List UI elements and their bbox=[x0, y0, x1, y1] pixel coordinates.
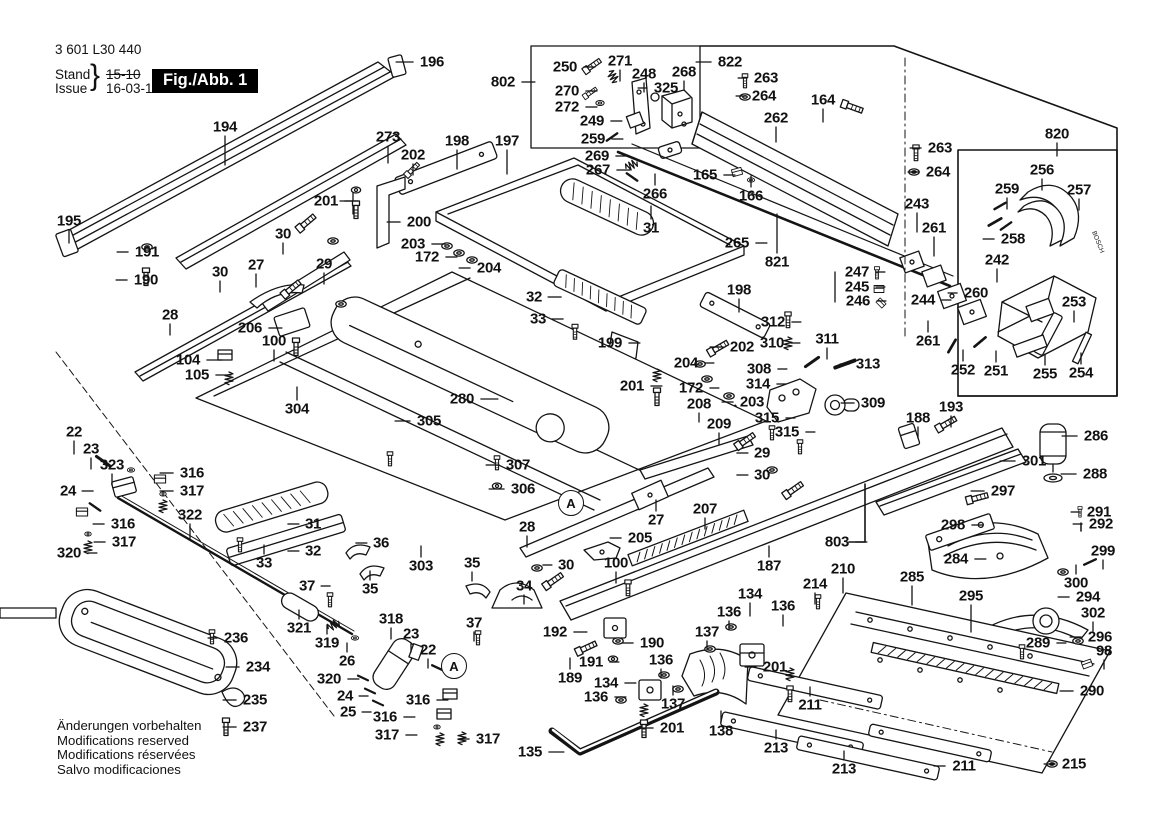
part-label: 202 bbox=[401, 148, 425, 163]
part-label: 271 bbox=[608, 54, 632, 69]
part-label: 262 bbox=[764, 111, 788, 126]
part-label: 194 bbox=[213, 120, 237, 135]
part-label: 36 bbox=[373, 536, 389, 551]
part-label: 288 bbox=[1083, 467, 1107, 482]
part-label: 211 bbox=[798, 698, 821, 713]
part-label: 208 bbox=[687, 397, 711, 412]
part-label: 320 bbox=[317, 672, 341, 687]
part-label: 255 bbox=[1033, 367, 1057, 382]
part-label: 29 bbox=[316, 257, 332, 272]
part-label: 209 bbox=[707, 417, 731, 432]
part-label: 259 bbox=[581, 132, 605, 147]
part-label: 266 bbox=[643, 187, 667, 202]
part-label: 802 bbox=[491, 75, 515, 90]
part-label: 197 bbox=[495, 134, 519, 149]
footer-line-es: Salvo modificaciones bbox=[57, 763, 201, 778]
part-label: 35 bbox=[362, 582, 378, 597]
part-label: 304 bbox=[285, 402, 309, 417]
part-label: 303 bbox=[409, 559, 433, 574]
part-label: 33 bbox=[256, 556, 272, 571]
part-label: 198 bbox=[727, 283, 751, 298]
part-label: 321 bbox=[287, 621, 311, 636]
part-label: 134 bbox=[738, 587, 762, 602]
part-label: 251 bbox=[984, 364, 1008, 379]
part-label: 22 bbox=[66, 425, 82, 440]
part-label: 316 bbox=[180, 466, 204, 481]
part-label: 37 bbox=[299, 579, 315, 594]
part-label: 204 bbox=[674, 356, 698, 371]
footer-line-en: Modifications reserved bbox=[57, 734, 201, 749]
part-label: 317 bbox=[375, 728, 399, 743]
circled-ref-a: A bbox=[558, 490, 584, 516]
part-label: 286 bbox=[1084, 429, 1108, 444]
part-label: 259 bbox=[995, 182, 1019, 197]
part-label: 33 bbox=[530, 312, 546, 327]
part-label: 28 bbox=[162, 308, 178, 323]
part-label: 234 bbox=[246, 660, 270, 675]
part-label: 31 bbox=[643, 221, 659, 236]
part-label: 192 bbox=[543, 625, 567, 640]
part-label: 254 bbox=[1069, 366, 1093, 381]
part-label: 308 bbox=[747, 362, 771, 377]
part-label: 32 bbox=[526, 290, 542, 305]
part-label: 202 bbox=[730, 340, 754, 355]
part-label: 189 bbox=[558, 671, 582, 686]
part-label: 237 bbox=[243, 720, 267, 735]
part-label: 25 bbox=[340, 705, 356, 720]
part-label: 310 bbox=[760, 336, 784, 351]
part-label: 315 bbox=[775, 425, 799, 440]
part-label: 313 bbox=[856, 357, 880, 372]
part-label: 302 bbox=[1081, 606, 1105, 621]
part-label: 268 bbox=[672, 65, 696, 80]
part-label: 37 bbox=[466, 616, 482, 631]
part-label: 280 bbox=[450, 392, 474, 407]
footer-notice: Änderungen vorbehalten Modifications res… bbox=[57, 719, 201, 777]
part-label: 306 bbox=[511, 482, 535, 497]
part-label: 24 bbox=[337, 689, 353, 704]
part-label: 203 bbox=[740, 395, 764, 410]
part-label: 100 bbox=[604, 556, 628, 571]
part-label: 249 bbox=[580, 114, 604, 129]
part-label: 191 bbox=[579, 655, 603, 670]
part-label: 190 bbox=[640, 636, 664, 651]
part-label: 98 bbox=[1096, 644, 1112, 659]
part-label: 205 bbox=[628, 531, 652, 546]
part-label: 316 bbox=[111, 517, 135, 532]
part-label: 201 bbox=[660, 721, 684, 736]
part-label: 323 bbox=[100, 458, 124, 473]
part-label: 325 bbox=[654, 81, 678, 96]
part-label: 821 bbox=[765, 255, 789, 270]
part-label: 100 bbox=[262, 334, 286, 349]
part-label: 164 bbox=[811, 93, 835, 108]
part-label: 200 bbox=[407, 215, 431, 230]
part-label: 298 bbox=[941, 518, 965, 533]
part-label: 322 bbox=[178, 508, 202, 523]
circled-ref-a: A bbox=[441, 653, 467, 679]
part-label: 273 bbox=[376, 130, 400, 145]
part-label: 135 bbox=[518, 745, 542, 760]
parts-diagram-page: BOSCH bbox=[0, 0, 1166, 824]
part-label: 272 bbox=[555, 100, 579, 115]
part-label: 136 bbox=[771, 599, 795, 614]
part-label: 252 bbox=[951, 363, 975, 378]
part-label: 263 bbox=[928, 141, 952, 156]
part-label: 257 bbox=[1067, 183, 1091, 198]
part-label: 263 bbox=[754, 71, 778, 86]
part-label: 236 bbox=[224, 631, 248, 646]
part-label: 213 bbox=[764, 741, 788, 756]
part-label: 316 bbox=[406, 693, 430, 708]
part-label: 269 bbox=[585, 149, 609, 164]
part-label: 267 bbox=[586, 163, 610, 178]
part-label: 289 bbox=[1026, 636, 1050, 651]
part-label: 247 bbox=[845, 265, 869, 280]
part-label: 137 bbox=[695, 625, 719, 640]
stand-label: Stand bbox=[55, 67, 90, 82]
part-label: 22 bbox=[420, 643, 436, 658]
part-label: 265 bbox=[725, 236, 749, 251]
part-label: 193 bbox=[939, 400, 963, 415]
part-label: 242 bbox=[985, 253, 1009, 268]
part-label: 309 bbox=[861, 396, 885, 411]
part-label: 285 bbox=[900, 570, 924, 585]
part-label: 244 bbox=[911, 293, 935, 308]
part-label: 24 bbox=[60, 484, 76, 499]
part-label: 30 bbox=[275, 227, 291, 242]
part-label: 165 bbox=[693, 168, 717, 183]
part-label: 243 bbox=[905, 197, 929, 212]
part-label: 253 bbox=[1062, 295, 1086, 310]
part-label: 35 bbox=[464, 556, 480, 571]
part-label: 172 bbox=[415, 250, 439, 265]
part-label: 166 bbox=[739, 189, 763, 204]
part-label: 23 bbox=[403, 627, 419, 642]
footer-line-fr: Modifications réservées bbox=[57, 748, 201, 763]
part-label: 201 bbox=[763, 660, 787, 675]
part-label: 211 bbox=[952, 759, 975, 774]
part-label: 290 bbox=[1080, 684, 1104, 699]
issue-label: Issue bbox=[55, 81, 87, 96]
part-label: 199 bbox=[598, 336, 622, 351]
part-label: 260 bbox=[964, 286, 988, 301]
part-label: 207 bbox=[693, 502, 717, 517]
part-label: 248 bbox=[632, 67, 656, 82]
part-label: 137 bbox=[661, 697, 685, 712]
part-label: 23 bbox=[83, 442, 99, 457]
part-label: 294 bbox=[1076, 590, 1100, 605]
part-label: 195 bbox=[57, 214, 81, 229]
part-label: 270 bbox=[555, 84, 579, 99]
part-label: 235 bbox=[243, 693, 267, 708]
part-label: 301 bbox=[1022, 454, 1046, 469]
part-label: 292 bbox=[1089, 517, 1113, 532]
part-label: 820 bbox=[1045, 127, 1069, 142]
part-label: 30 bbox=[212, 265, 228, 280]
part-label: 31 bbox=[305, 517, 321, 532]
part-label: 319 bbox=[315, 636, 339, 651]
part-label: 105 bbox=[185, 368, 209, 383]
part-label: 201 bbox=[314, 194, 338, 209]
part-label: 258 bbox=[1001, 232, 1025, 247]
part-label: 30 bbox=[558, 558, 574, 573]
part-label: 803 bbox=[825, 535, 849, 550]
part-label: 214 bbox=[803, 577, 827, 592]
part-label: 27 bbox=[248, 258, 264, 273]
part-label: 136 bbox=[717, 605, 741, 620]
old-date: 15-10 bbox=[106, 67, 141, 82]
document-number: 3 601 L30 440 bbox=[55, 42, 141, 57]
part-label: 295 bbox=[959, 589, 983, 604]
part-label: 261 bbox=[916, 334, 940, 349]
footer-line-de: Änderungen vorbehalten bbox=[57, 719, 201, 734]
part-label: 138 bbox=[709, 724, 733, 739]
part-label: 312 bbox=[761, 315, 785, 330]
part-label: 136 bbox=[649, 653, 673, 668]
part-label: 30 bbox=[754, 468, 770, 483]
part-label: 213 bbox=[832, 762, 856, 777]
part-label: 318 bbox=[379, 612, 403, 627]
part-label: 201 bbox=[620, 379, 644, 394]
part-label: 188 bbox=[906, 411, 930, 426]
part-label: 210 bbox=[831, 562, 855, 577]
part-label: 204 bbox=[477, 261, 501, 276]
part-label: 250 bbox=[553, 60, 577, 75]
part-label: 317 bbox=[180, 484, 204, 499]
part-label: 317 bbox=[476, 732, 500, 747]
part-label: 305 bbox=[417, 414, 441, 429]
part-label: 104 bbox=[176, 353, 200, 368]
part-label: 26 bbox=[339, 654, 355, 669]
part-label: 34 bbox=[516, 579, 532, 594]
part-label: 261 bbox=[922, 221, 946, 236]
part-label: 198 bbox=[445, 134, 469, 149]
brace-glyph: } bbox=[90, 61, 100, 91]
part-label: 297 bbox=[991, 484, 1015, 499]
part-label: 190 bbox=[134, 273, 158, 288]
part-label: 317 bbox=[112, 535, 136, 550]
part-label: 206 bbox=[238, 321, 262, 336]
part-label: 311 bbox=[815, 332, 838, 347]
part-label: 284 bbox=[944, 552, 968, 567]
part-label: 314 bbox=[746, 377, 770, 392]
part-label: 187 bbox=[757, 559, 781, 574]
part-label: 822 bbox=[718, 55, 742, 70]
part-label: 246 bbox=[846, 294, 870, 309]
part-label: 320 bbox=[57, 546, 81, 561]
part-label: 172 bbox=[679, 381, 703, 396]
part-label: 191 bbox=[135, 245, 159, 260]
part-label: 136 bbox=[584, 690, 608, 705]
part-label: 264 bbox=[752, 89, 776, 104]
part-label: 32 bbox=[305, 544, 321, 559]
part-label: 299 bbox=[1091, 544, 1115, 559]
part-label: 316 bbox=[373, 710, 397, 725]
part-label: 215 bbox=[1062, 757, 1086, 772]
part-label: 27 bbox=[648, 513, 664, 528]
part-label: 28 bbox=[519, 520, 535, 535]
part-label: 256 bbox=[1030, 163, 1054, 178]
part-label: 264 bbox=[926, 165, 950, 180]
part-label: 196 bbox=[420, 55, 444, 70]
part-label: 29 bbox=[754, 446, 770, 461]
figure-badge: Fig./Abb. 1 bbox=[152, 69, 258, 93]
part-label: 307 bbox=[506, 458, 530, 473]
